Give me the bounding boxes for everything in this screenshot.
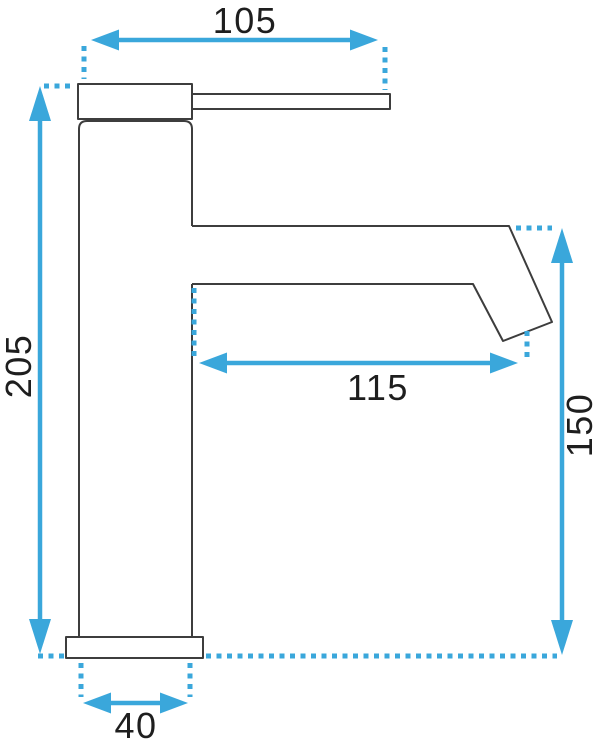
dim-label-spout-height: 150 [559,393,600,458]
arrowhead-up-icon [29,86,51,121]
faucet-body-outline [79,121,192,637]
faucet-dimension-drawing: 105 205 115 150 [0,0,611,744]
arrowhead-left-icon [83,693,111,714]
arrowhead-left-icon [91,30,119,51]
arrowhead-up-icon [551,228,573,263]
arrowhead-right-icon [490,353,518,374]
faucet-base-outline [66,637,203,658]
arrowhead-left-icon [199,353,227,374]
dim-label-body-diameter: 40 [114,705,157,744]
faucet-lever-outline [192,94,390,109]
technical-drawing-canvas: 105 205 115 150 [0,0,611,744]
dim-top-width: 105 [84,0,385,90]
dim-body-diameter: 40 [81,663,190,744]
arrowhead-down-icon [551,620,573,655]
faucet-outline [66,84,552,658]
dim-label-top-width: 105 [213,0,278,41]
faucet-cap-outline [78,84,192,119]
dim-label-total-height: 205 [0,334,39,399]
dim-spout-reach: 115 [194,288,527,408]
dim-total-height: 205 [0,86,74,654]
faucet-spout-outline [192,226,552,341]
dim-label-spout-reach: 115 [347,367,409,408]
arrowhead-right-icon [350,30,378,51]
arrowhead-right-icon [160,693,188,714]
arrowhead-down-icon [29,619,51,654]
